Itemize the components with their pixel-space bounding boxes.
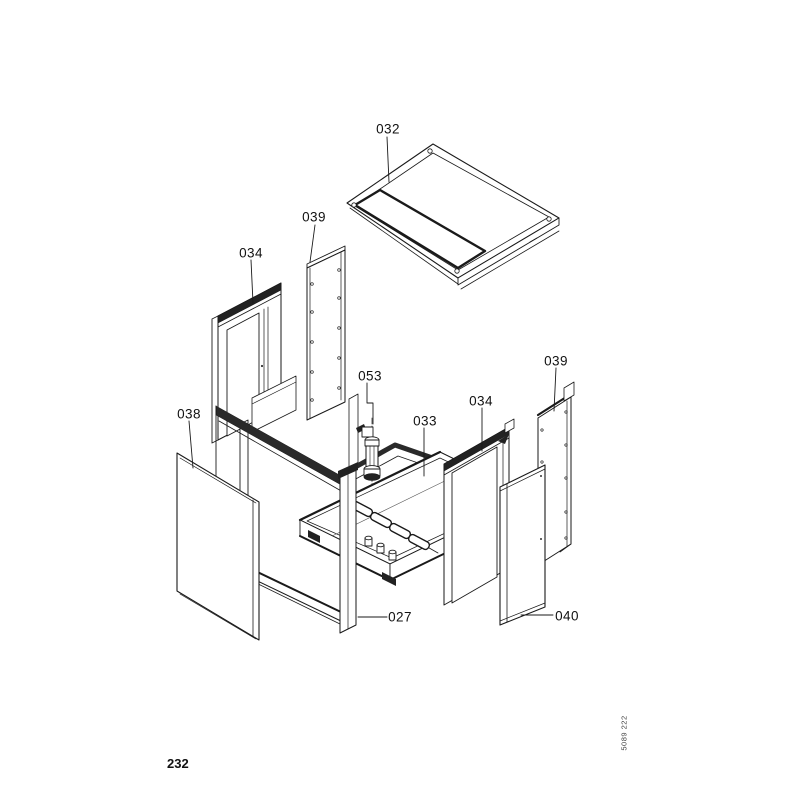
part-label-034-right: 034 xyxy=(469,394,493,409)
body-front-pillar xyxy=(338,462,358,633)
part-label-039-right: 039 xyxy=(544,354,568,369)
part-label-032: 032 xyxy=(376,122,400,137)
part-label-034-left: 034 xyxy=(239,246,263,261)
manual-page: 032 039 034 038 053 033 034 039 027 040 … xyxy=(0,0,800,800)
part-front-panel-040 xyxy=(500,465,545,625)
part-label-053: 053 xyxy=(358,369,382,384)
part-label-033: 033 xyxy=(413,414,437,429)
page-number: 232 xyxy=(167,756,189,771)
leader-039-left xyxy=(310,225,315,262)
part-top-cover-032 xyxy=(347,144,559,289)
part-label-040: 040 xyxy=(555,609,579,624)
exploded-diagram xyxy=(0,0,800,800)
part-side-panel-039-left xyxy=(307,246,345,420)
part-label-038: 038 xyxy=(177,407,201,422)
part-valve-053 xyxy=(356,418,380,484)
part-label-039-left: 039 xyxy=(302,210,326,225)
leader-034-left xyxy=(251,260,253,303)
document-code: 5089 222 xyxy=(620,715,629,750)
part-label-027: 027 xyxy=(388,610,412,625)
